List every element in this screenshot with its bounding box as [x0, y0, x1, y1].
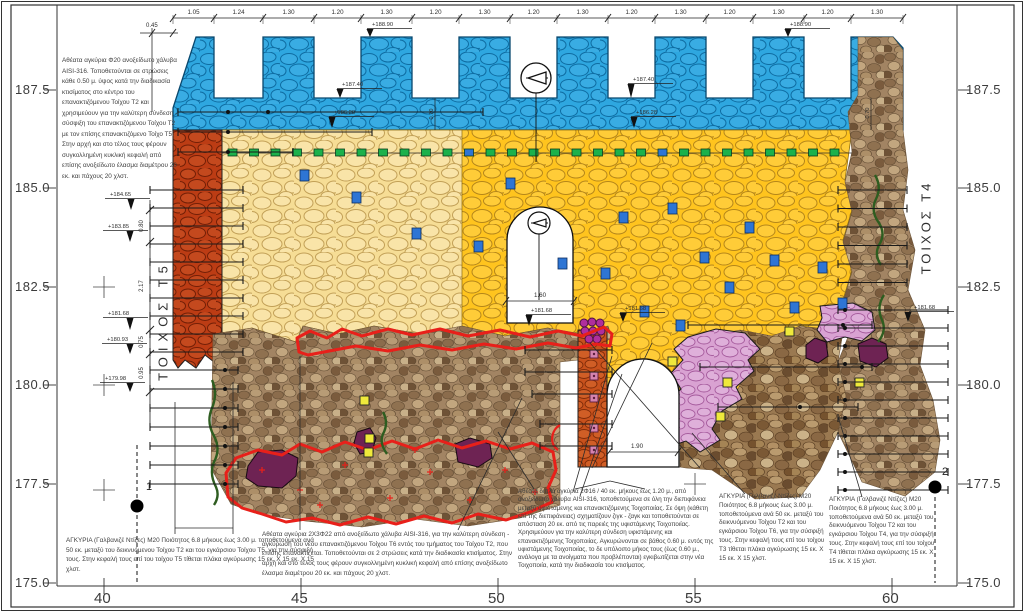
dim-label: +183.85	[108, 224, 129, 230]
dim-label: +180.93	[107, 337, 128, 343]
dim-label: +187.40	[633, 77, 654, 83]
dim-label: 1.30	[576, 9, 589, 16]
dim-label: 1.30	[674, 9, 687, 16]
dim-label: 1.20	[429, 9, 442, 16]
dim-label: +186.28	[334, 110, 355, 116]
dim-label: +188.90	[372, 22, 393, 28]
dim-label: 1.30	[380, 9, 393, 16]
dim-label: +181.68	[625, 306, 646, 312]
dim-label: +186.28	[636, 110, 657, 116]
dim-label: 0.80	[139, 220, 145, 232]
dim-label: 1.20	[723, 9, 736, 16]
dim-label: 1.90	[631, 443, 644, 450]
dim-label: +181.68	[531, 308, 552, 314]
dim-label: 1.60	[534, 292, 547, 299]
dim-label: 0.75	[139, 336, 145, 348]
dim-label: 1.20	[331, 9, 344, 16]
section-marker-2-dot	[929, 481, 942, 494]
drawing-sheet: 1.051.241.301.201.301.201.301.201.301.20…	[0, 0, 1024, 612]
dim-label: 0.95	[139, 367, 145, 379]
dim-label: 1.05	[187, 9, 200, 16]
dim-label: 1.30	[871, 9, 884, 16]
dim-label: 1.30	[282, 9, 295, 16]
dim-label: +181.68	[914, 305, 935, 311]
dim-label: 0.70	[865, 108, 871, 119]
dim-label: +184.65	[110, 192, 131, 198]
dim-label: 1.24	[232, 9, 245, 16]
dim-label: 1.30	[772, 9, 785, 16]
arch-opening-lower	[607, 359, 679, 467]
dim-label: +187.40	[342, 82, 363, 88]
section-marker-1-dot	[131, 500, 144, 513]
dim-label: 1.20	[821, 9, 834, 16]
dim-label: 2.17	[139, 280, 145, 292]
dim-label: 0.70	[429, 109, 435, 120]
dim-label: 1.30	[478, 9, 491, 16]
green-anchor-plates	[228, 149, 839, 156]
elevation-drawing: 1.051.241.301.201.301.201.301.201.301.20…	[0, 0, 1024, 612]
wall-t5-section-red	[173, 130, 222, 368]
dim-label: +188.90	[790, 22, 811, 28]
left-dimension-chain: 0.802.170.750.95	[139, 200, 154, 424]
dim-label: +179.98	[105, 376, 126, 382]
wall-body-pale	[222, 130, 462, 342]
dim-label: 1.20	[625, 9, 638, 16]
dim-label: 0.45	[146, 23, 158, 29]
dim-label: 1.20	[527, 9, 540, 16]
dim-label: +181.68	[108, 311, 129, 317]
existing-masonry-right-column	[838, 37, 940, 496]
